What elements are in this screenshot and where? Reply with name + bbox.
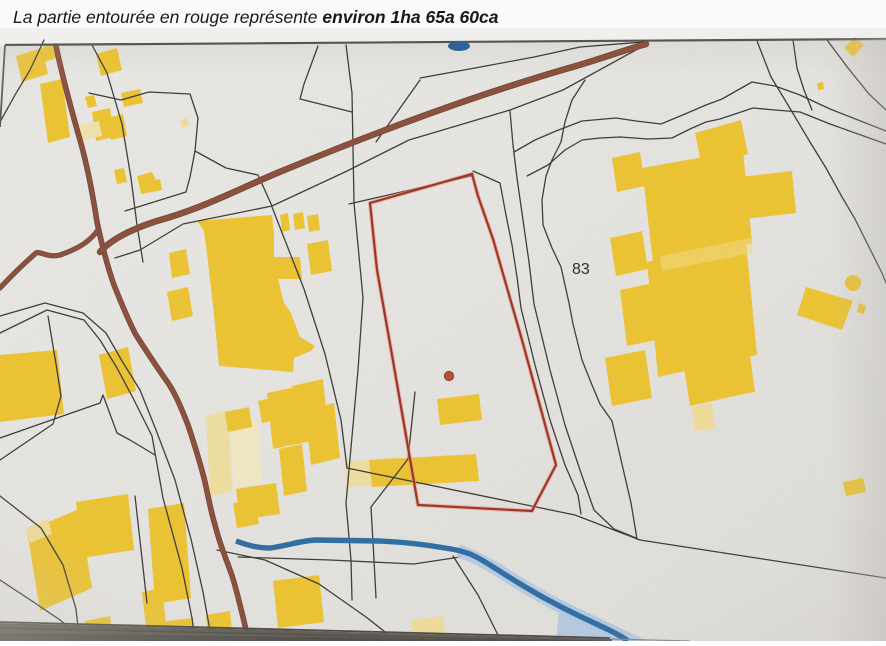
svg-text:La partie entourée en rouge re: La partie entourée en rouge représente e… — [13, 7, 499, 27]
